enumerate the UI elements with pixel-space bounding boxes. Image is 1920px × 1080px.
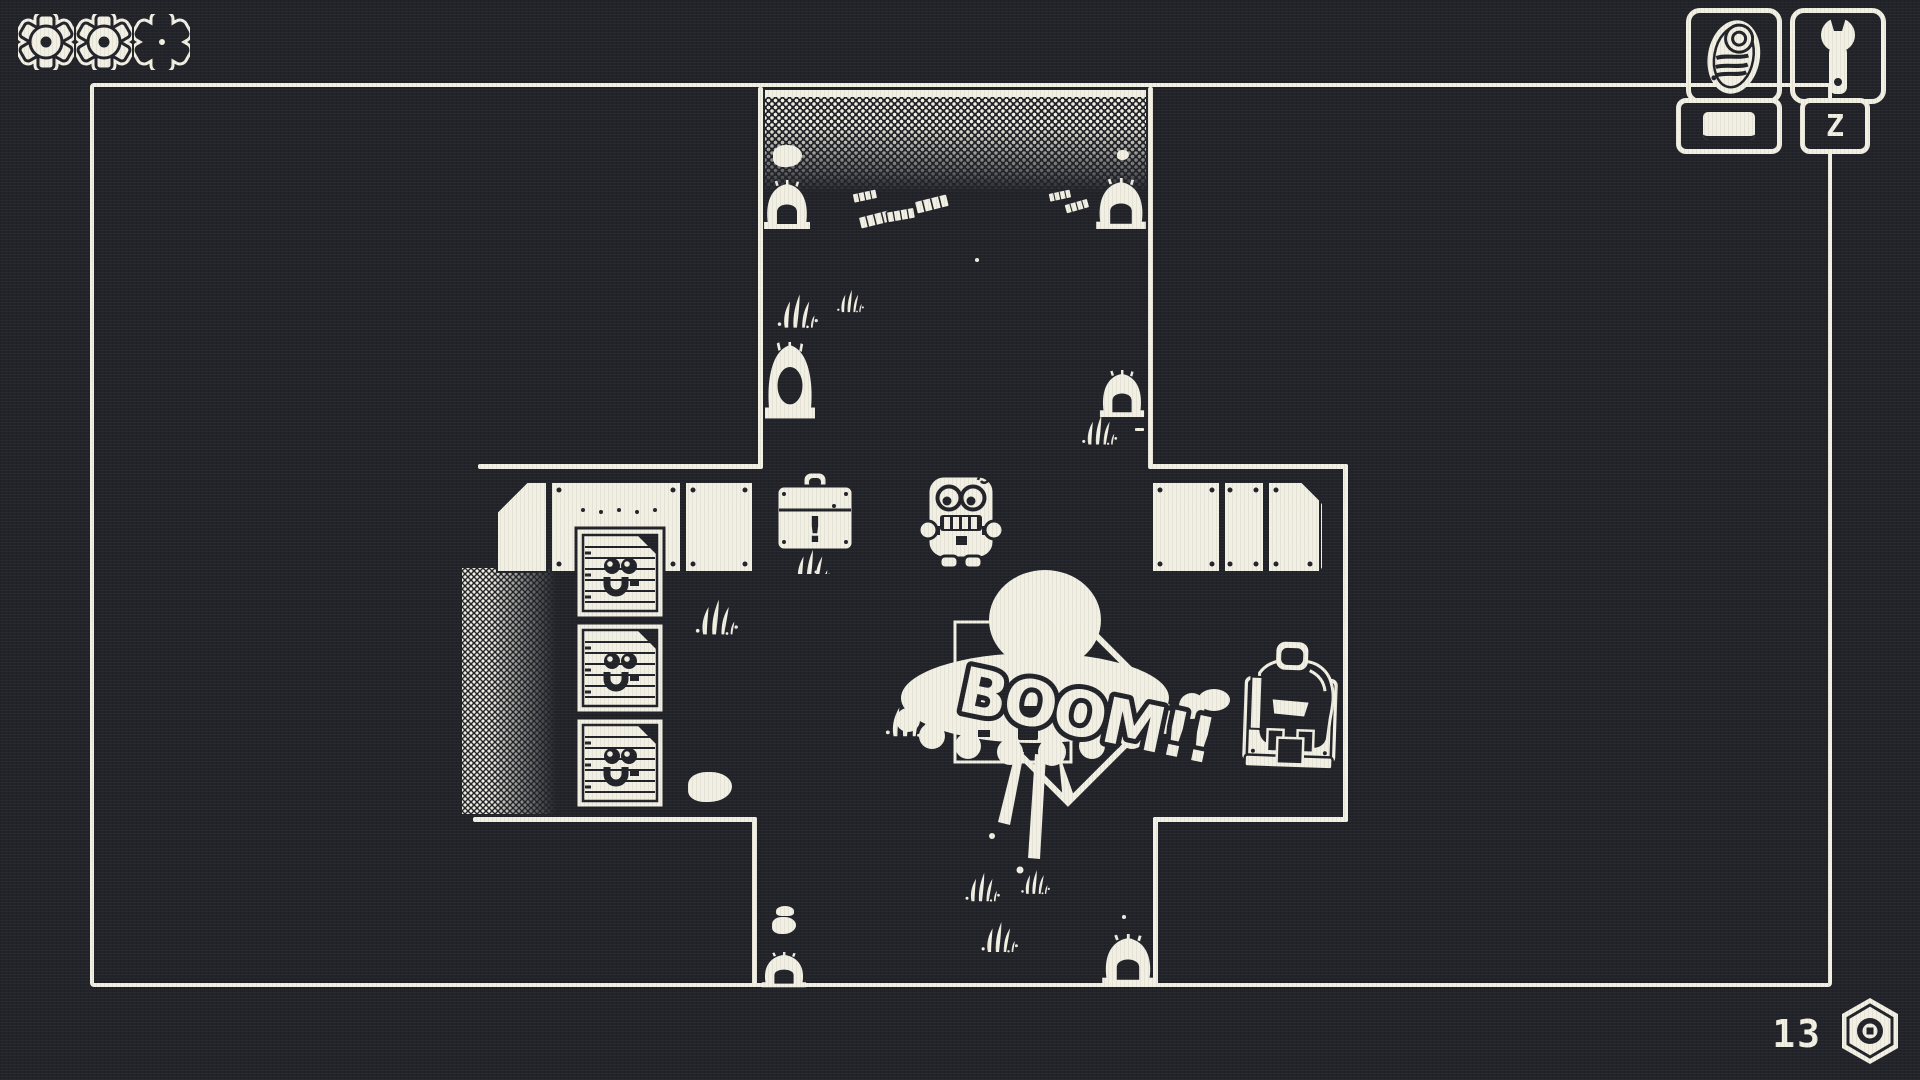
dither-gradient-entrance [765,90,1146,192]
grass-tuft [776,292,818,330]
tent-sprite [1094,178,1148,230]
wall-segment [478,464,763,469]
keybind-z[interactable]: Z [1800,98,1870,154]
game-stage[interactable]: ! [0,0,1920,1080]
tent-sprite [1100,934,1156,986]
speck [1135,428,1144,431]
sneaker-icon [1703,15,1765,97]
tent-sprite [764,342,816,420]
wall-segment [1148,87,1153,468]
wall-segment [473,817,757,822]
spacebar-key-icon [1703,112,1755,140]
crate-sprite [574,621,666,715]
keybind-space[interactable] [1676,98,1782,154]
counter-value: 13 [1700,1012,1822,1056]
chest-exclamation-mark: ! [807,510,823,551]
crate-sprite [574,716,666,810]
grass-tuft [694,596,738,638]
key-label: Z [1826,109,1844,144]
gear-icon [76,14,132,70]
speck [975,258,979,262]
item-slot-wrench[interactable] [1790,8,1886,104]
broken-robot [1238,640,1344,772]
health-gear-meter [0,0,260,80]
exclamation-chest: ! [772,470,858,574]
tent-sprite [762,180,812,230]
gear-icon [18,14,74,70]
tent-sprite [760,952,808,988]
gear-icon [134,14,190,70]
item-slot-sneaker[interactable] [1686,8,1782,104]
hex-nut-icon [1838,996,1902,1066]
grass-tuft [980,920,1018,954]
dither-wall-shading [462,568,556,814]
mushroom-sprite [776,906,794,916]
wrench-icon [1809,14,1867,98]
tent-sprite [1098,370,1146,418]
wall-segment [758,87,763,468]
wall-segment [752,817,757,987]
explosion-effect: BOOM!! [870,538,1250,882]
grass-tuft [1078,414,1120,446]
crate-sprite [574,526,666,620]
speck [806,226,809,229]
wall-segment [1148,464,1348,469]
grass-tuft [836,288,864,314]
speck [1122,915,1126,919]
